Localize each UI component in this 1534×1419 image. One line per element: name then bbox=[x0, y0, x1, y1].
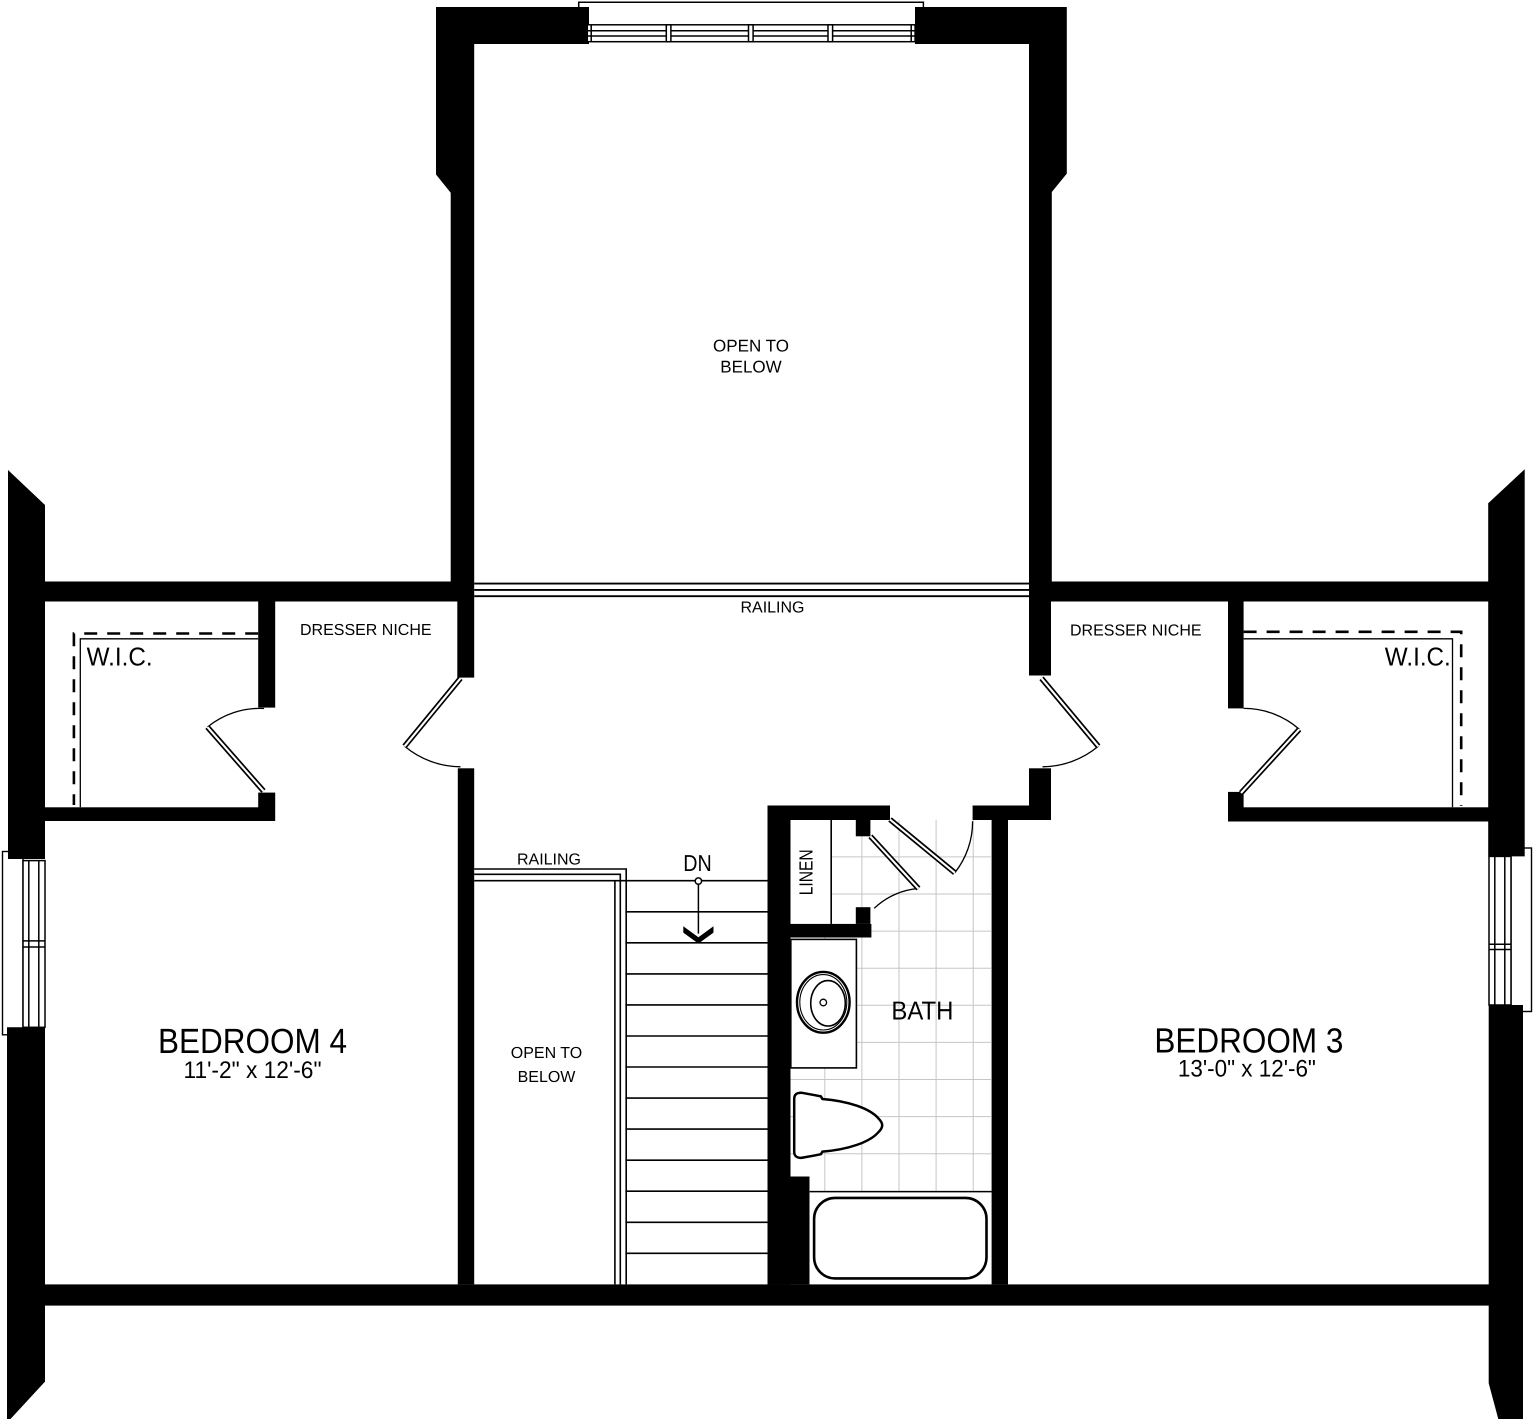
svg-text:13'-0" x 12'-6": 13'-0" x 12'-6" bbox=[1178, 1056, 1316, 1083]
svg-text:BELOW: BELOW bbox=[720, 358, 781, 377]
svg-text:RAILING: RAILING bbox=[740, 600, 804, 617]
svg-text:DRESSER NICHE: DRESSER NICHE bbox=[300, 622, 432, 639]
svg-text:BATH: BATH bbox=[891, 996, 953, 1026]
svg-text:BELOW: BELOW bbox=[518, 1069, 577, 1086]
svg-text:DN: DN bbox=[683, 850, 712, 876]
svg-text:DRESSER NICHE: DRESSER NICHE bbox=[1070, 623, 1202, 640]
svg-text:BEDROOM 4: BEDROOM 4 bbox=[158, 1022, 347, 1061]
svg-text:OPEN TO: OPEN TO bbox=[713, 337, 789, 356]
svg-text:OPEN TO: OPEN TO bbox=[511, 1045, 582, 1062]
svg-text:11'-2" x 12'-6": 11'-2" x 12'-6" bbox=[184, 1057, 322, 1084]
svg-text:LINEN: LINEN bbox=[797, 849, 818, 895]
svg-text:W.I.C.: W.I.C. bbox=[1385, 641, 1451, 671]
svg-text:W.I.C.: W.I.C. bbox=[87, 641, 153, 671]
svg-text:RAILING: RAILING bbox=[517, 851, 581, 868]
